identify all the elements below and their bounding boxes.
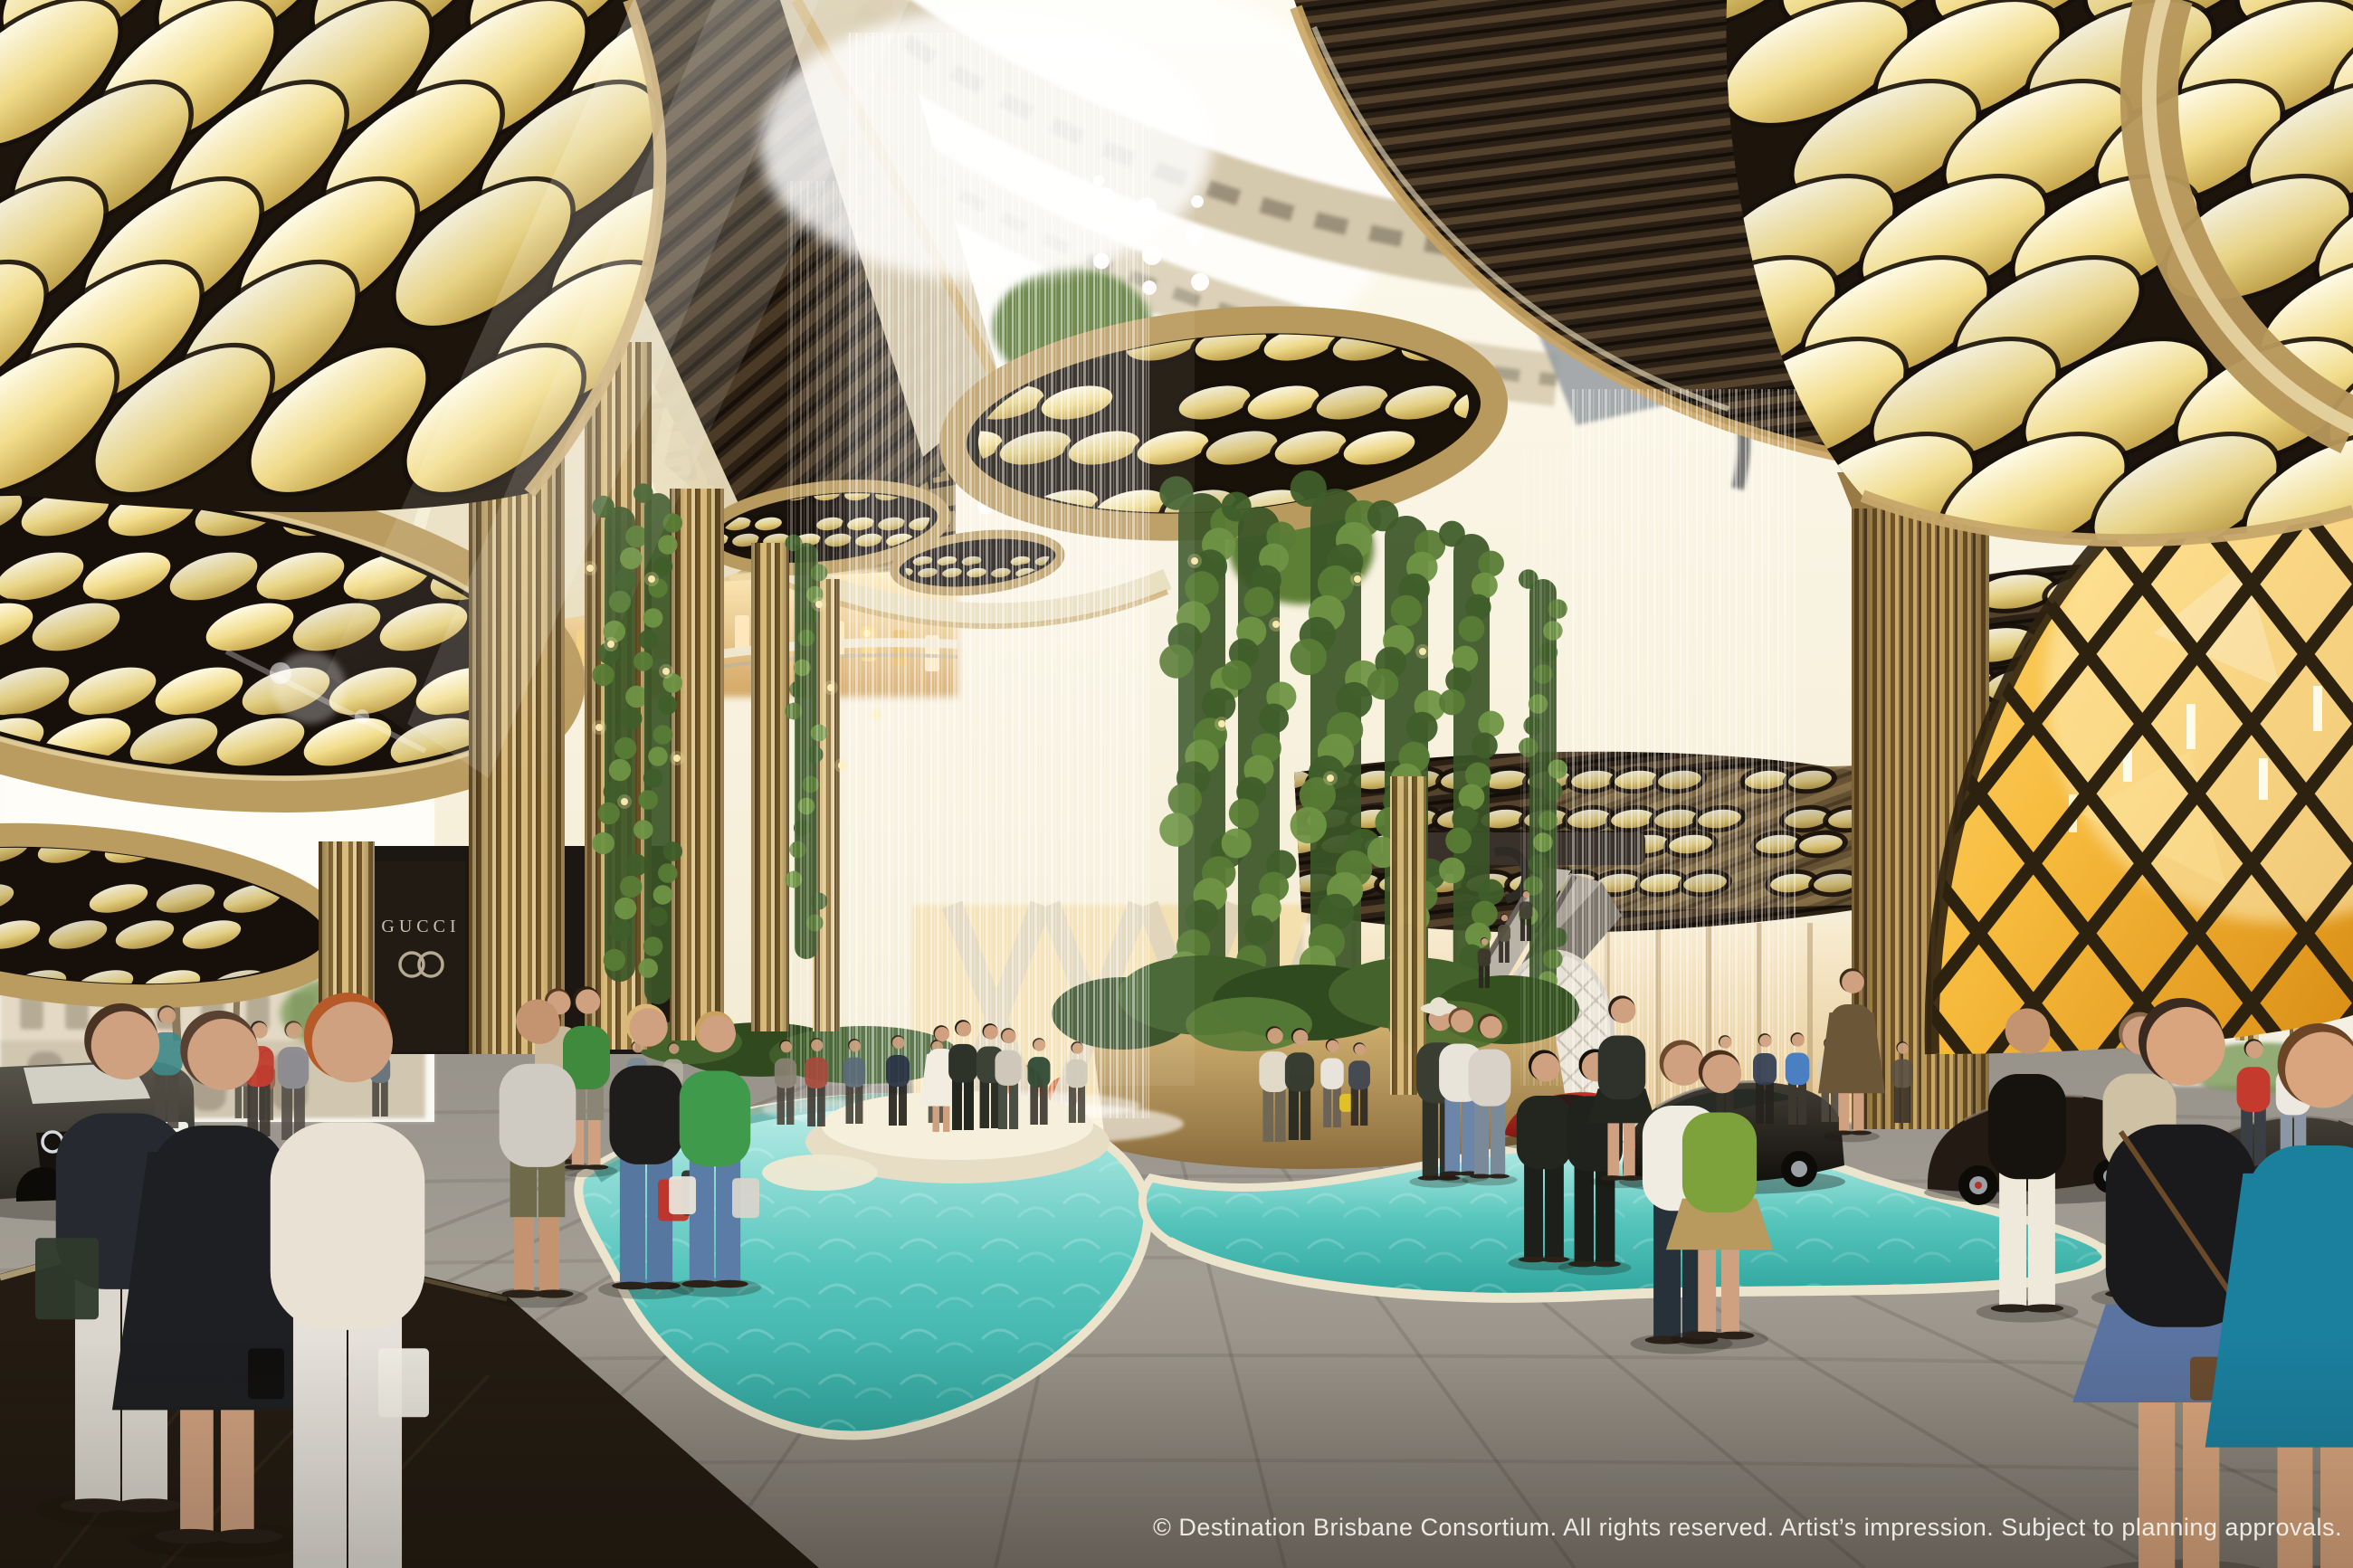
scene-canvas: GUCCI — [0, 0, 2353, 1568]
gucci-sign-text: GUCCI — [381, 917, 460, 936]
column — [751, 543, 789, 1031]
waterfall-right — [1570, 389, 1796, 1104]
casino-atrium-rendering: GUCCI — [0, 0, 2353, 1568]
column — [1390, 776, 1426, 1095]
watermark-text: © Destination Brisbane Consortium. All r… — [1153, 1514, 2342, 1541]
lens-flare — [273, 651, 346, 724]
